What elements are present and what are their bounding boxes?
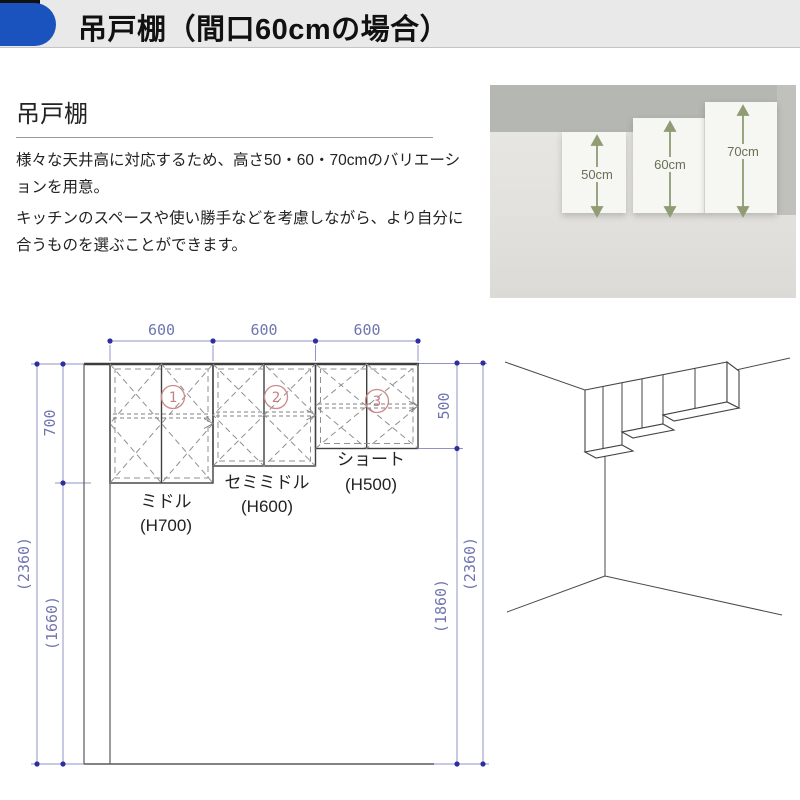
photo-arrows-svg [490,85,796,298]
dim-left-2360: (2360) [15,537,33,591]
callout-1: 1 [169,390,177,406]
iso-drawing-svg [495,330,800,630]
label-semimiddle: セミミドル [225,473,310,492]
photo-label-50cm: 50cm [579,167,615,182]
dim-right-500: 500 [435,392,453,419]
intro-paragraph-2: キッチンのスペースや使い勝手などを考慮しながら、より自分に合うものを選ぶことがで… [16,205,468,259]
blue-pill-accent [0,3,56,46]
label-short: ショート [337,450,405,469]
intro-paragraph-1: 様々な天井高に対応するため、高さ50・60・70cmのバリエーションを用意。 [16,147,468,201]
intro-block: 吊戸棚 様々な天井高に対応するため、高さ50・60・70cmのバリエーションを用… [16,94,468,259]
header-bar: 吊戸棚（間口60cmの場合） [0,0,800,48]
photo-label-70cm: 70cm [725,144,761,159]
label-short-size: (H500) [345,475,397,494]
product-photo: 50cm 60cm 70cm [490,85,796,298]
plan-diagram-svg: 600 600 600 700 (2360) (1660) 500 (1860)… [15,320,495,790]
photo-label-60cm: 60cm [652,157,688,172]
dim-left-700: 700 [41,409,59,436]
label-middle-size: (H700) [140,516,192,535]
callout-2: 2 [272,390,280,406]
callout-3: 3 [373,394,381,410]
page: 吊戸棚（間口60cmの場合） 吊戸棚 様々な天井高に対応するため、高さ50・60… [0,0,800,800]
dim-right-2360: (2360) [461,537,479,591]
page-title: 吊戸棚（間口60cmの場合） [78,6,449,48]
label-middle: ミドル [141,492,192,511]
dim-left-1660: (1660) [43,596,61,650]
dim-right-1860: (1860) [432,579,450,633]
dim-width-2: 600 [250,321,277,339]
dim-width-3: 600 [353,321,380,339]
section-subtitle: 吊戸棚 [16,94,433,138]
dim-width-1: 600 [148,321,175,339]
label-semimiddle-size: (H600) [241,497,293,516]
